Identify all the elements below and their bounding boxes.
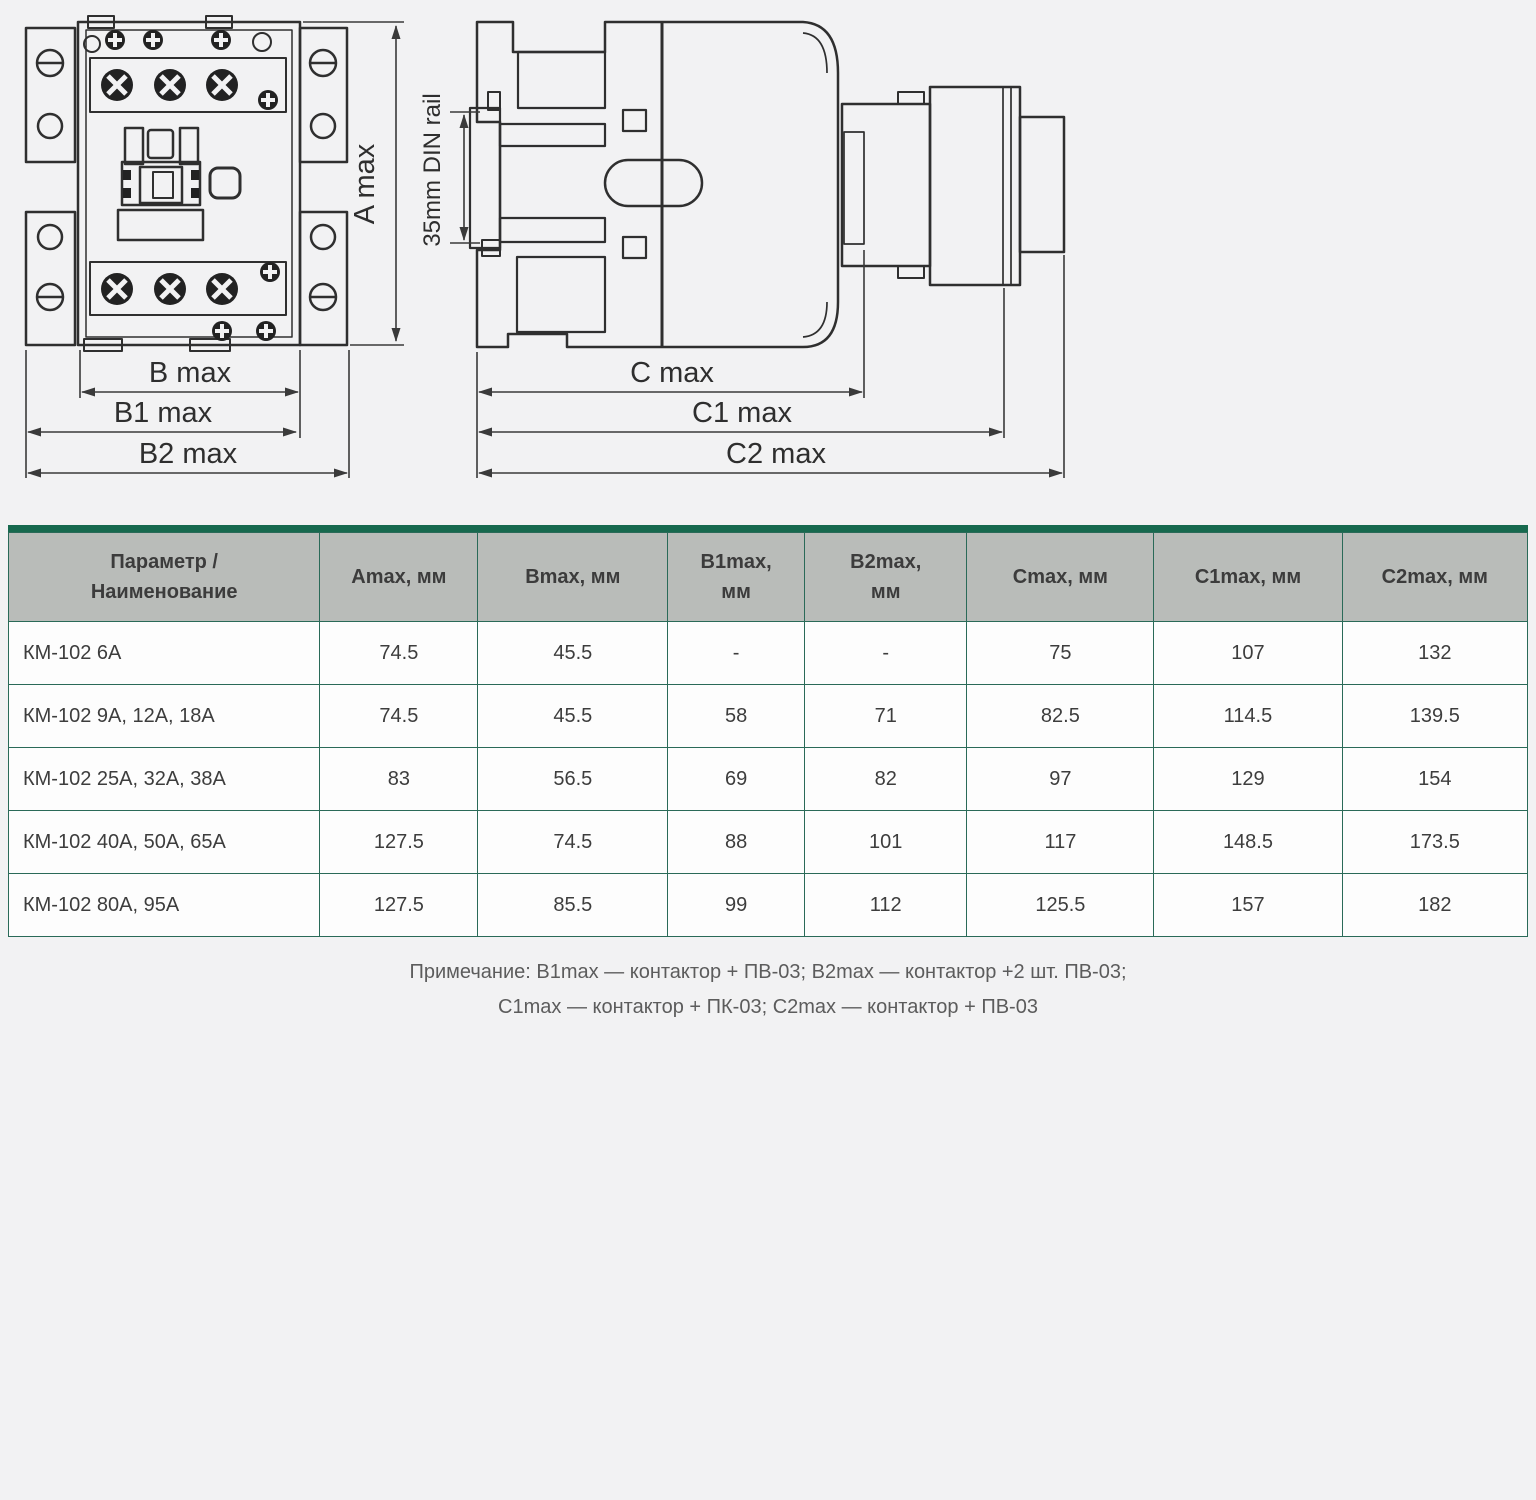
value-cell: 85.5 xyxy=(478,874,668,937)
table-row: КМ-102 40А, 50А, 65А 127.5 74.5 88 101 1… xyxy=(9,811,1528,874)
value-cell: 129 xyxy=(1154,748,1342,811)
value-cell: 74.5 xyxy=(478,811,668,874)
value-cell: 45.5 xyxy=(478,622,668,685)
value-cell: 74.5 xyxy=(320,622,478,685)
col-header-parameter: Параметр / Наименование xyxy=(9,533,320,622)
dim-label-b-max: B max xyxy=(149,357,232,389)
col-header-c2max: C2max, мм xyxy=(1342,533,1527,622)
col-header-bmax: Bmax, мм xyxy=(478,533,668,622)
col-header-c1max: C1max, мм xyxy=(1154,533,1342,622)
value-cell: 182 xyxy=(1342,874,1527,937)
footnote-line-1: Примечание: B1max — контактор + ПВ-03; B… xyxy=(0,955,1536,990)
dim-label-c-max: C max xyxy=(630,357,714,389)
value-cell: 125.5 xyxy=(967,874,1154,937)
value-cell: - xyxy=(804,622,967,685)
value-cell: 56.5 xyxy=(478,748,668,811)
value-cell: 127.5 xyxy=(320,811,478,874)
param-name-cell: КМ-102 6А xyxy=(9,622,320,685)
value-cell: 82.5 xyxy=(967,685,1154,748)
dimensions-table-container: Параметр / Наименование Amax, мм Bmax, м… xyxy=(8,525,1528,937)
footnote-line-2: C1max — контактор + ПК-03; C2max — конта… xyxy=(0,990,1536,1025)
value-cell: 114.5 xyxy=(1154,685,1342,748)
value-cell: 112 xyxy=(804,874,967,937)
dim-label-b2-max: B2 max xyxy=(139,438,238,470)
value-cell: 107 xyxy=(1154,622,1342,685)
value-cell: 45.5 xyxy=(478,685,668,748)
col-header-amax: Amax, мм xyxy=(320,533,478,622)
value-cell: 83 xyxy=(320,748,478,811)
side-view-diagram: 35mm DIN rail C max C1 max C2 max xyxy=(420,0,1100,490)
value-cell: 71 xyxy=(804,685,967,748)
front-screws xyxy=(37,30,336,341)
dim-label-c1-max: C1 max xyxy=(692,397,792,429)
value-cell: 58 xyxy=(668,685,805,748)
contactor-front-outline xyxy=(26,16,347,351)
col-header-cmax: Cmax, мм xyxy=(967,533,1154,622)
table-row: КМ-102 80А, 95А 127.5 85.5 99 112 125.5 … xyxy=(9,874,1528,937)
value-cell: 132 xyxy=(1342,622,1527,685)
value-cell: 154 xyxy=(1342,748,1527,811)
param-name-cell: КМ-102 9А, 12А, 18А xyxy=(9,685,320,748)
value-cell: - xyxy=(668,622,805,685)
din-rail-label: 35mm DIN rail xyxy=(420,93,446,246)
value-cell: 99 xyxy=(668,874,805,937)
value-cell: 75 xyxy=(967,622,1154,685)
table-row: КМ-102 6А 74.5 45.5 - - 75 107 132 xyxy=(9,622,1528,685)
value-cell: 148.5 xyxy=(1154,811,1342,874)
table-header-row: Параметр / Наименование Amax, мм Bmax, м… xyxy=(9,533,1528,622)
dimension-drawings: A max B max B1 max B2 max xyxy=(0,0,1536,505)
table-row: КМ-102 25А, 32А, 38А 83 56.5 69 82 97 12… xyxy=(9,748,1528,811)
param-name-cell: КМ-102 40А, 50А, 65А xyxy=(9,811,320,874)
value-cell: 82 xyxy=(804,748,967,811)
col-header-b1max: B1max, мм xyxy=(668,533,805,622)
dimensions-table: Параметр / Наименование Amax, мм Bmax, м… xyxy=(8,532,1528,937)
value-cell: 127.5 xyxy=(320,874,478,937)
value-cell: 97 xyxy=(967,748,1154,811)
footnote: Примечание: B1max — контактор + ПВ-03; B… xyxy=(0,955,1536,1025)
value-cell: 88 xyxy=(668,811,805,874)
col-header-b2max: B2max, мм xyxy=(804,533,967,622)
param-name-cell: КМ-102 80А, 95А xyxy=(9,874,320,937)
dim-label-c2-max: C2 max xyxy=(726,438,826,470)
value-cell: 173.5 xyxy=(1342,811,1527,874)
dim-label-b1-max: B1 max xyxy=(114,397,213,429)
value-cell: 101 xyxy=(804,811,967,874)
value-cell: 69 xyxy=(668,748,805,811)
value-cell: 74.5 xyxy=(320,685,478,748)
table-row: КМ-102 9А, 12А, 18А 74.5 45.5 58 71 82.5… xyxy=(9,685,1528,748)
dim-label-a-max: A max xyxy=(349,143,381,224)
value-cell: 117 xyxy=(967,811,1154,874)
value-cell: 139.5 xyxy=(1342,685,1527,748)
param-name-cell: КМ-102 25А, 32А, 38А xyxy=(9,748,320,811)
front-view-diagram: A max B max B1 max B2 max xyxy=(0,0,420,490)
contactor-side-outline xyxy=(470,22,1064,347)
value-cell: 157 xyxy=(1154,874,1342,937)
